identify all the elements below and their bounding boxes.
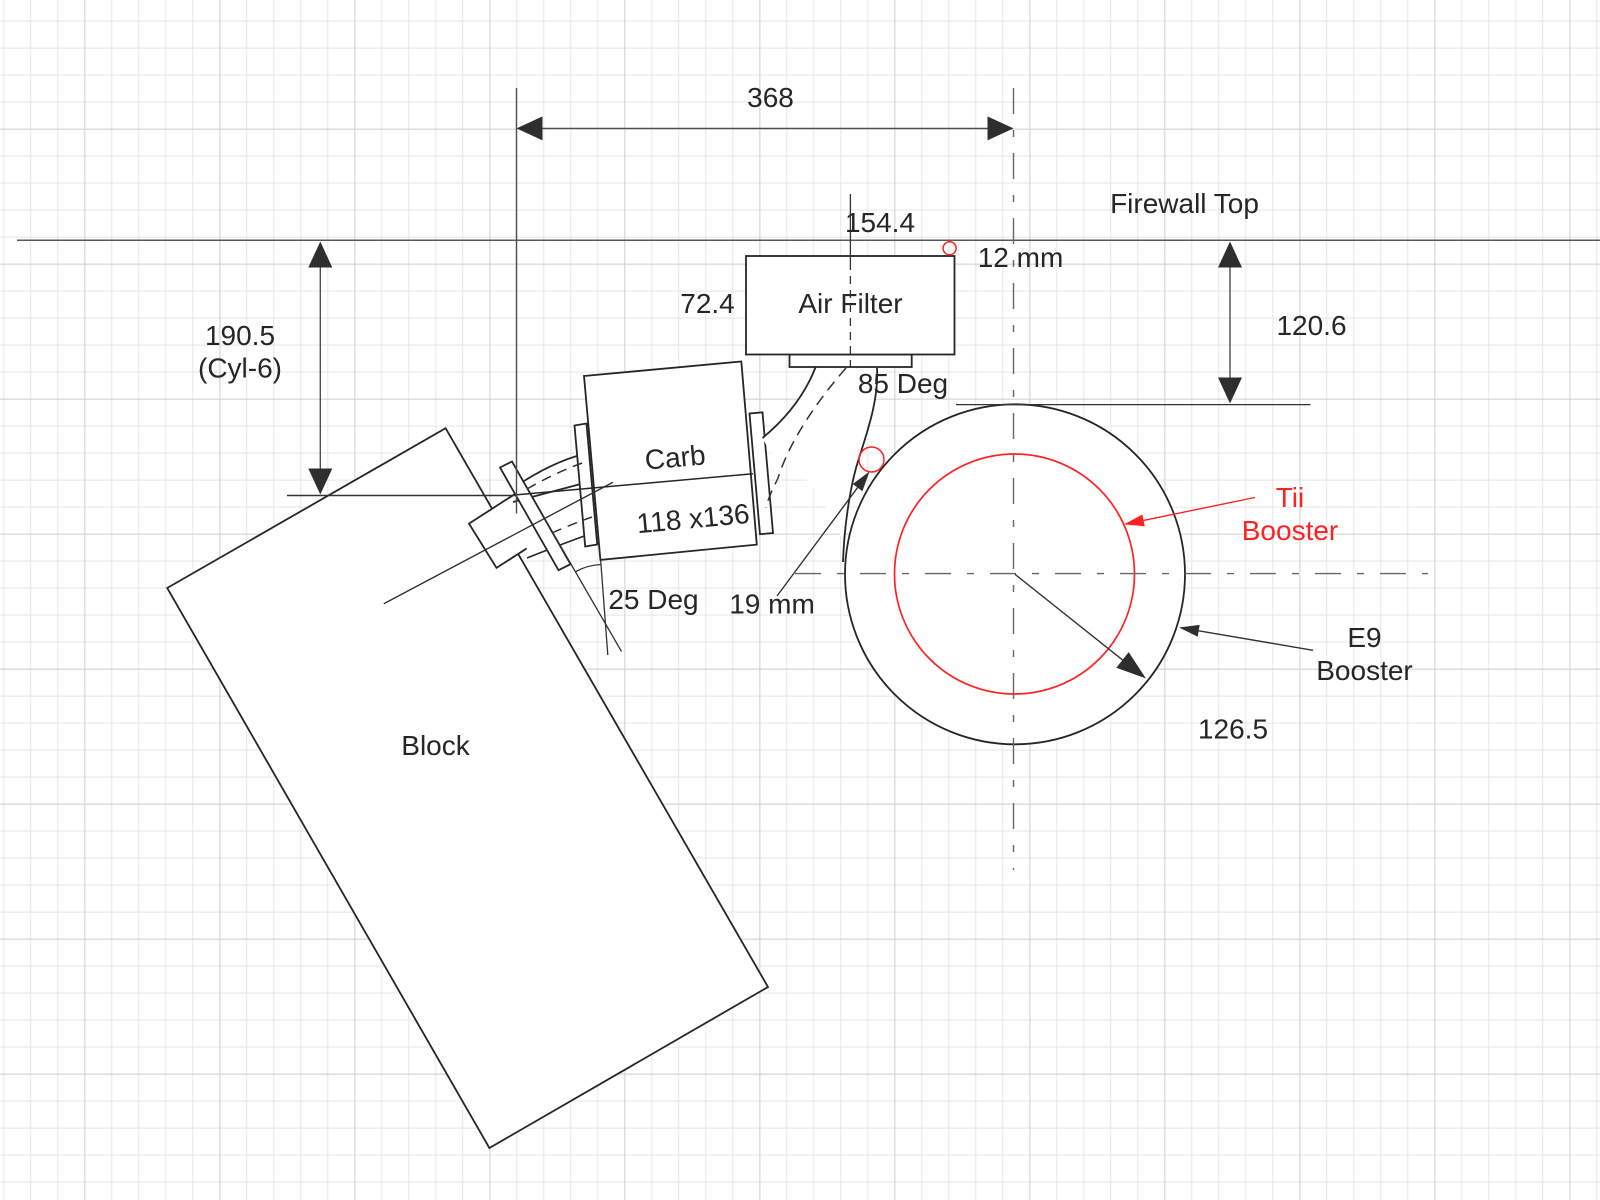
svg-text:126.5: 126.5 — [1198, 714, 1268, 745]
svg-text:Booster: Booster — [1242, 515, 1339, 546]
svg-text:85 Deg: 85 Deg — [858, 368, 948, 399]
svg-text:Firewall Top: Firewall Top — [1110, 188, 1259, 219]
svg-text:Block: Block — [401, 730, 470, 761]
svg-text:12 mm: 12 mm — [978, 242, 1064, 273]
svg-text:25 Deg: 25 Deg — [608, 584, 698, 615]
svg-text:190.5: 190.5 — [205, 320, 275, 351]
svg-text:120.6: 120.6 — [1276, 310, 1346, 341]
svg-text:E9: E9 — [1347, 622, 1381, 653]
svg-text:368: 368 — [747, 82, 794, 113]
svg-text:Booster: Booster — [1316, 655, 1413, 686]
svg-text:Carb: Carb — [643, 439, 706, 475]
svg-text:(Cyl-6): (Cyl-6) — [198, 353, 282, 384]
svg-text:72.4: 72.4 — [680, 288, 735, 319]
svg-text:19 mm: 19 mm — [729, 589, 815, 620]
svg-text:Tii: Tii — [1276, 482, 1305, 513]
svg-text:154.4: 154.4 — [845, 207, 915, 238]
